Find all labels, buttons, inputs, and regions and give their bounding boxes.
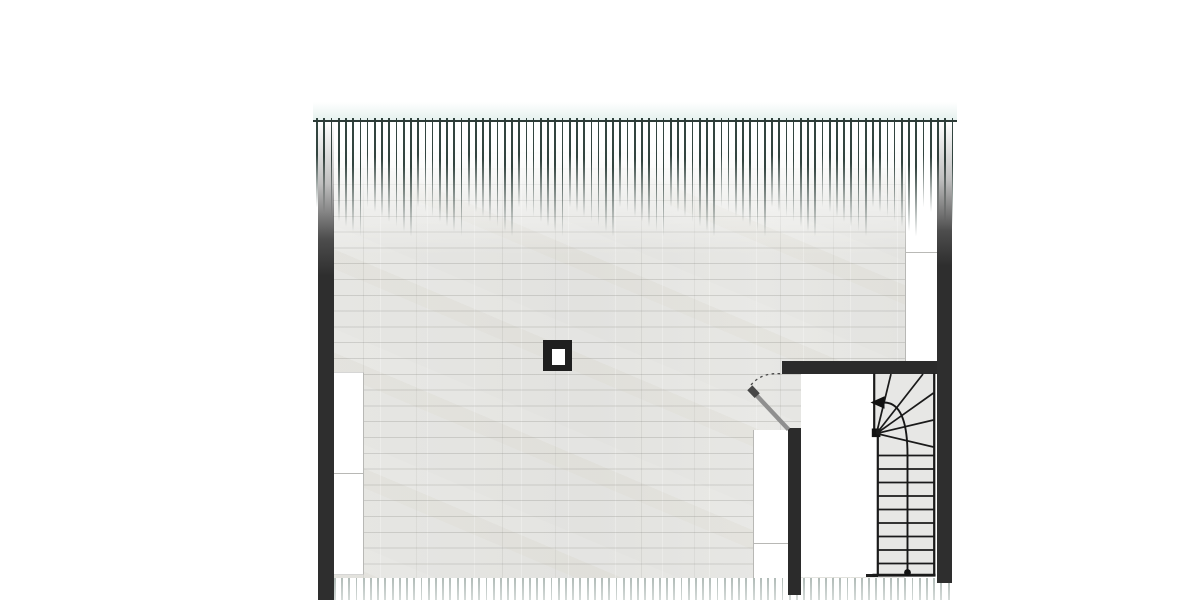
stairwell-left-wall [788,428,801,595]
staircase-area [874,374,937,576]
chimney-flue [552,349,565,365]
strip-divider-line [334,473,363,474]
strip-divider-line [754,543,791,544]
stair-bottom-wall-stub [866,574,878,577]
top-eaves-line [313,120,957,122]
stairwell-top-wall [782,361,952,375]
left-knee-wall-strip [334,372,364,575]
floor-plan-canvas [0,0,1200,600]
top-fade-overlay [313,121,957,255]
lower-right-knee-wall-strip [753,430,791,578]
bottom-eaves-band [313,578,957,600]
left-exterior-wall [318,121,334,600]
stair-left-margin [874,437,878,576]
right-exterior-wall [937,121,953,583]
top-eaves-glow [313,102,957,121]
chimney [543,340,572,371]
